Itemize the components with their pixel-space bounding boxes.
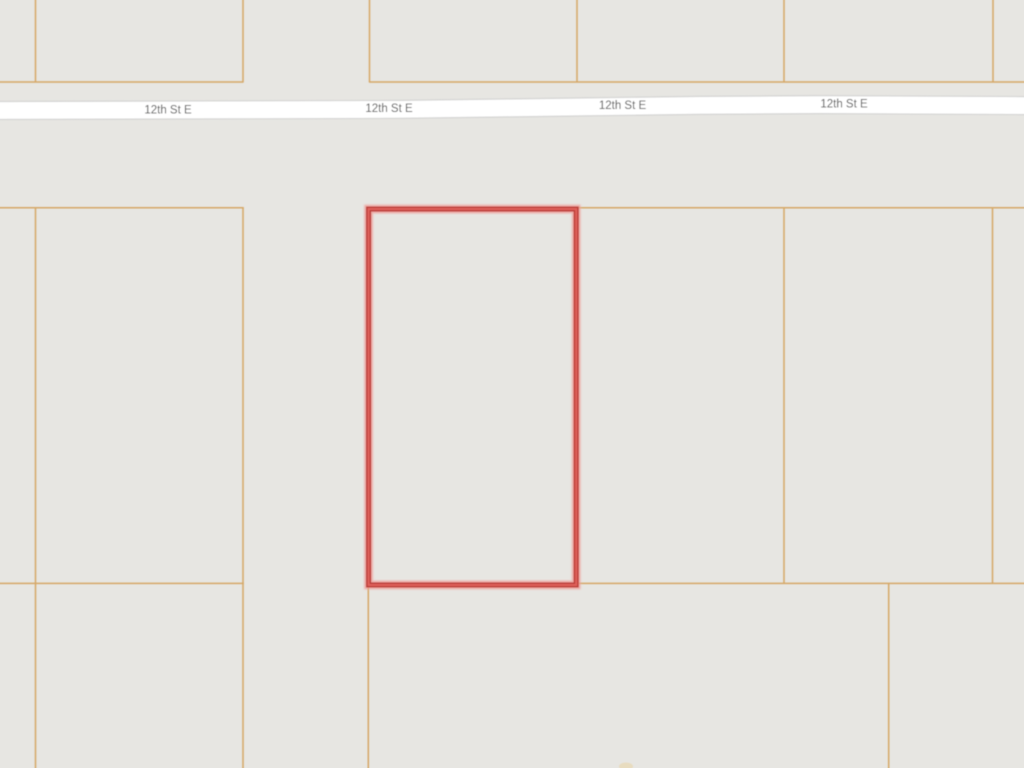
- svg-text:12th St E: 12th St E: [144, 104, 192, 116]
- svg-text:12th St E: 12th St E: [820, 99, 868, 111]
- svg-text:12th St E: 12th St E: [365, 103, 413, 115]
- svg-text:12th St E: 12th St E: [599, 100, 647, 112]
